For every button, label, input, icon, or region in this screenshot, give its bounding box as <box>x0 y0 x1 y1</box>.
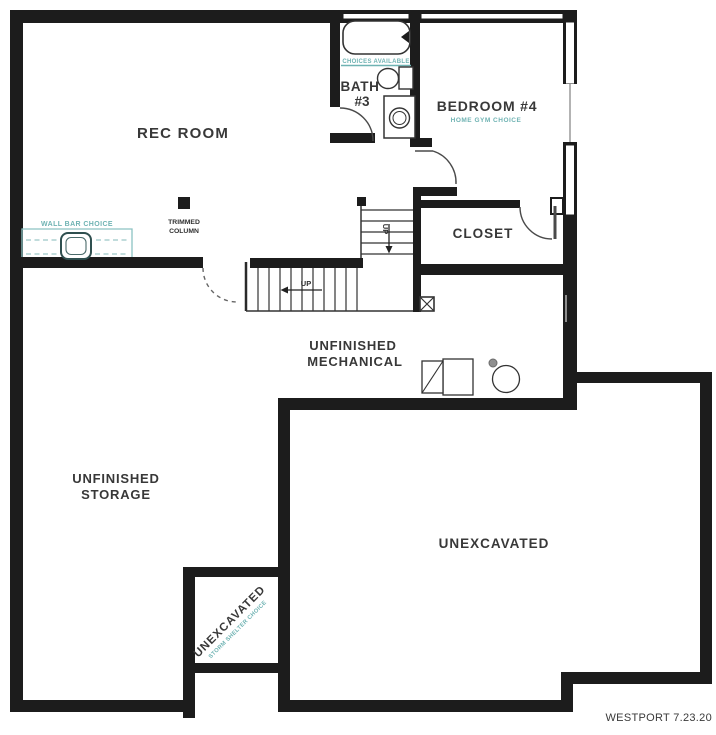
shelter-unexcavated-label: UNEXCAVATED <box>192 584 268 660</box>
water-heater-icon <box>493 366 520 393</box>
window-top-bath-icon <box>343 14 409 20</box>
wall-right-lower-exterior <box>700 372 712 684</box>
storm-shelter-labels: UNEXCAVATED STORM SHELTER CHOICE <box>192 584 274 666</box>
bedroom-gym-note: HOME GYM CHOICE <box>451 117 522 124</box>
wall-bath-bottom <box>330 133 375 143</box>
column-icon <box>178 197 190 209</box>
wall-unexcavated-top <box>278 398 577 410</box>
stair-upper-arrow-head-icon <box>386 246 393 254</box>
bath-label-line1: BATH <box>341 79 380 94</box>
floor-plan-svg: REC ROOM BATH #3 CHOICES AVAILABLE BEDRO… <box>0 0 716 735</box>
wall-shelter-top <box>183 567 290 577</box>
newel-post-icon <box>357 197 366 206</box>
wall-shelter-bottom <box>183 663 290 673</box>
wall-bottom-left-exterior <box>10 700 191 712</box>
window-right-lower-icon <box>566 145 575 215</box>
mechanical-label-line1: UNFINISHED <box>309 338 396 353</box>
stair-lower-arrow-head-icon <box>281 287 289 294</box>
rec-room-opening-arc <box>203 268 237 302</box>
flue-icon <box>489 359 497 367</box>
toilet-icon <box>378 69 399 89</box>
wall-bedroom-south <box>413 187 457 196</box>
bedroom-door-arc <box>433 151 456 184</box>
bathtub-icon <box>343 21 410 54</box>
wall-bar-label: WALL BAR CHOICE <box>41 221 113 228</box>
furnace-icon <box>443 359 473 395</box>
basement-floor-plan: REC ROOM BATH #3 CHOICES AVAILABLE BEDRO… <box>0 0 716 735</box>
wall-left-exterior <box>10 10 23 712</box>
rec-room-label: REC ROOM <box>137 125 229 142</box>
wall-stair-top <box>250 258 363 268</box>
staircase <box>246 197 413 311</box>
bath-choices-note: CHOICES AVAILABLE <box>342 59 409 65</box>
stair-lower-up-label: UP <box>301 279 311 288</box>
toilet-tank-icon <box>399 67 413 89</box>
wall-shelter-left <box>183 567 195 718</box>
wall-right-extension <box>570 372 712 383</box>
wall-closet-bottom <box>413 264 563 275</box>
wall-bath-se-stub <box>410 138 432 147</box>
wall-bath-left <box>330 23 340 107</box>
window-right-upper-icon <box>566 22 575 84</box>
closet-door-jamb <box>551 198 563 214</box>
wall-unexcavated-bottom <box>283 700 573 712</box>
window-top-bedroom-icon <box>421 14 563 20</box>
trimmed-column-label-line1: TRIMMED <box>168 219 200 226</box>
wall-stair-right <box>413 196 421 312</box>
storage-label-line2: STORAGE <box>81 487 151 502</box>
wall-step-horizontal <box>561 672 712 684</box>
wall-rec-room-bottom <box>10 257 203 268</box>
closet-label: CLOSET <box>453 226 514 241</box>
wall-closet-top <box>418 200 520 208</box>
bedroom-label: BEDROOM #4 <box>437 98 538 114</box>
closet-door-arc <box>520 207 552 239</box>
plan-footer-text: WESTPORT 7.23.20 <box>606 712 713 724</box>
trimmed-column-label-line2: COLUMN <box>169 228 199 235</box>
mechanical-label-line2: MECHANICAL <box>307 354 402 369</box>
washer-door-inner-icon <box>393 112 406 125</box>
unexcavated-label: UNEXCAVATED <box>439 536 550 551</box>
storage-label-line1: UNFINISHED <box>72 471 159 486</box>
bath-label-line2: #3 <box>354 94 370 109</box>
stair-upper-up-label: UP <box>381 224 390 234</box>
wall-bar-option <box>22 229 132 259</box>
labels: REC ROOM BATH #3 CHOICES AVAILABLE BEDRO… <box>41 59 712 724</box>
